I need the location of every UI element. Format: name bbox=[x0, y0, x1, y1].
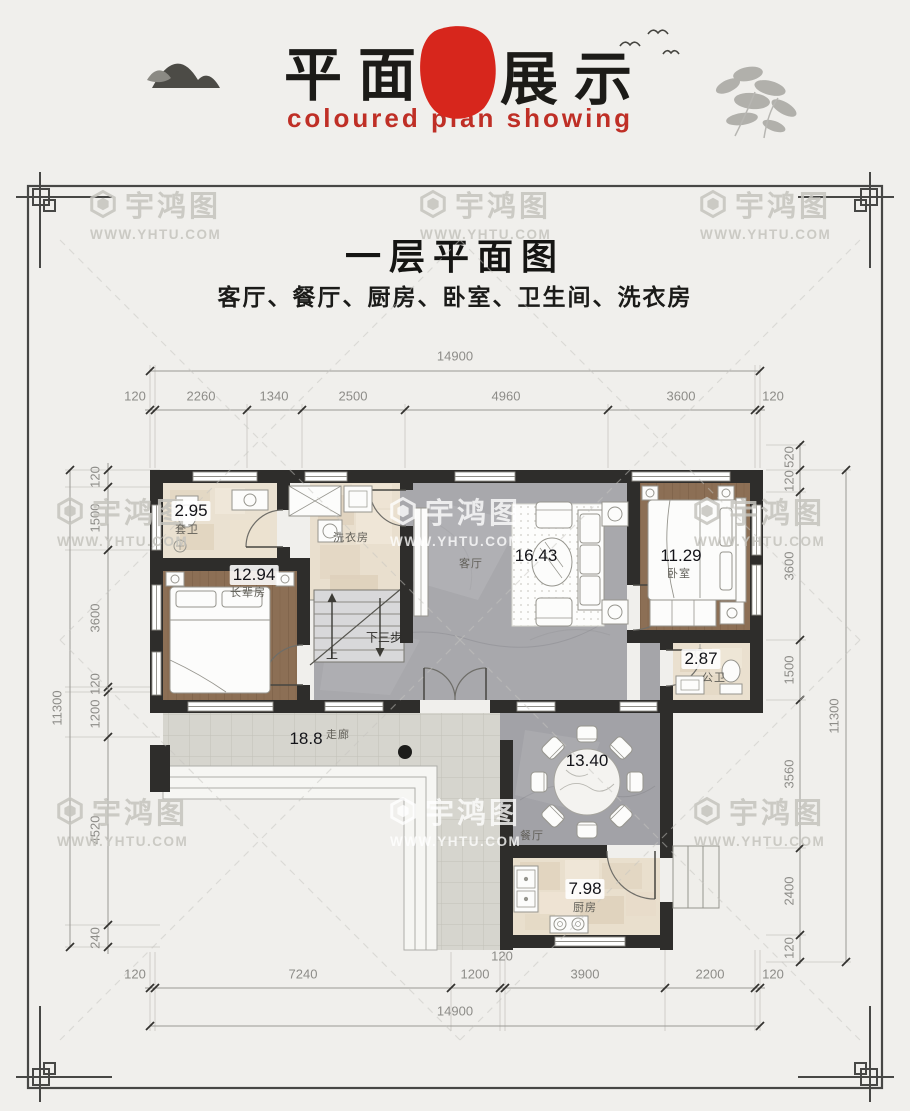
dim-right-seg: 120 bbox=[782, 937, 797, 959]
name-bedroom: 卧室 bbox=[667, 565, 691, 581]
dim-left-seg: 120 bbox=[88, 673, 103, 695]
name-elder: 长辈房 bbox=[230, 584, 266, 600]
dim-bottom-seg: 7240 bbox=[289, 967, 318, 982]
dim-left-seg: 1500 bbox=[88, 504, 103, 533]
area-bath: 2.87 bbox=[681, 649, 720, 669]
ink-mountains-art bbox=[147, 64, 220, 88]
corridor-column-dot bbox=[398, 745, 412, 759]
dim-top-seg: 3600 bbox=[667, 389, 696, 404]
dim-bottom-overall: 14900 bbox=[437, 1004, 473, 1019]
dim-right-seg: 520 bbox=[782, 446, 797, 468]
dim-left-overall: 11300 bbox=[50, 690, 65, 725]
area-elder: 12.94 bbox=[230, 565, 279, 585]
name-laundry: 洗衣房 bbox=[333, 529, 369, 545]
dim-right-seg: 3600 bbox=[782, 552, 797, 581]
dim-top-overall: 14900 bbox=[437, 349, 473, 364]
red-seal-shape bbox=[420, 26, 496, 119]
dim-right-overall: 11300 bbox=[827, 698, 842, 733]
dim-right-seg: 1500 bbox=[782, 656, 797, 685]
dim-left-seg: 3600 bbox=[88, 604, 103, 633]
dim-right-seg: 2400 bbox=[782, 877, 797, 906]
stairs-down-label: 下三步 bbox=[366, 629, 402, 646]
dim-bottom-seg: 1200 bbox=[461, 967, 490, 982]
area-ensuite: 2.95 bbox=[171, 501, 210, 521]
floor-plan-svg bbox=[0, 0, 910, 1111]
staircase bbox=[310, 583, 408, 665]
floor-plan-poster: { "header": { "brand_cn_left": "平面", "br… bbox=[0, 0, 910, 1111]
dim-top-seg: 1340 bbox=[260, 389, 289, 404]
dim-top-seg: 120 bbox=[762, 389, 784, 404]
dim-left-seg: 120 bbox=[88, 466, 103, 488]
dim-bottom-seg: 3900 bbox=[571, 967, 600, 982]
area-corridor: 18.8 bbox=[289, 729, 322, 749]
area-dining: 13.40 bbox=[566, 751, 609, 771]
dim-right-seg: 120 bbox=[782, 470, 797, 492]
dim-top-seg: 120 bbox=[124, 389, 146, 404]
dim-top-seg: 2260 bbox=[187, 389, 216, 404]
dim-top-seg: 4960 bbox=[492, 389, 521, 404]
dim-bottom-seg: 2200 bbox=[696, 967, 725, 982]
name-corridor: 走廊 bbox=[326, 726, 350, 742]
dim-left-seg: 240 bbox=[88, 927, 103, 949]
name-ensuite: 套卫 bbox=[175, 521, 199, 537]
dim-bottom-seg: 120 bbox=[762, 967, 784, 982]
name-kitchen: 厨房 bbox=[573, 899, 597, 915]
dim-top-seg: 2500 bbox=[339, 389, 368, 404]
name-bath: 公卫 bbox=[702, 669, 726, 685]
birds-icon bbox=[620, 30, 679, 54]
ink-plant-art bbox=[714, 65, 799, 138]
dim-left-seg: 1200 bbox=[88, 700, 103, 729]
name-living: 客厅 bbox=[459, 555, 483, 571]
dim-bottom-seg: 120 bbox=[491, 949, 513, 964]
area-kitchen: 7.98 bbox=[565, 879, 604, 899]
dim-right-seg: 3560 bbox=[782, 760, 797, 789]
name-dining: 餐厅 bbox=[520, 827, 544, 843]
stairs-up-label: 上 bbox=[326, 646, 338, 663]
dim-bottom-seg: 120 bbox=[124, 967, 146, 982]
dim-left-seg: 4520 bbox=[88, 816, 103, 845]
area-living: 16.43 bbox=[515, 546, 558, 566]
area-bedroom: 11.29 bbox=[660, 546, 701, 566]
